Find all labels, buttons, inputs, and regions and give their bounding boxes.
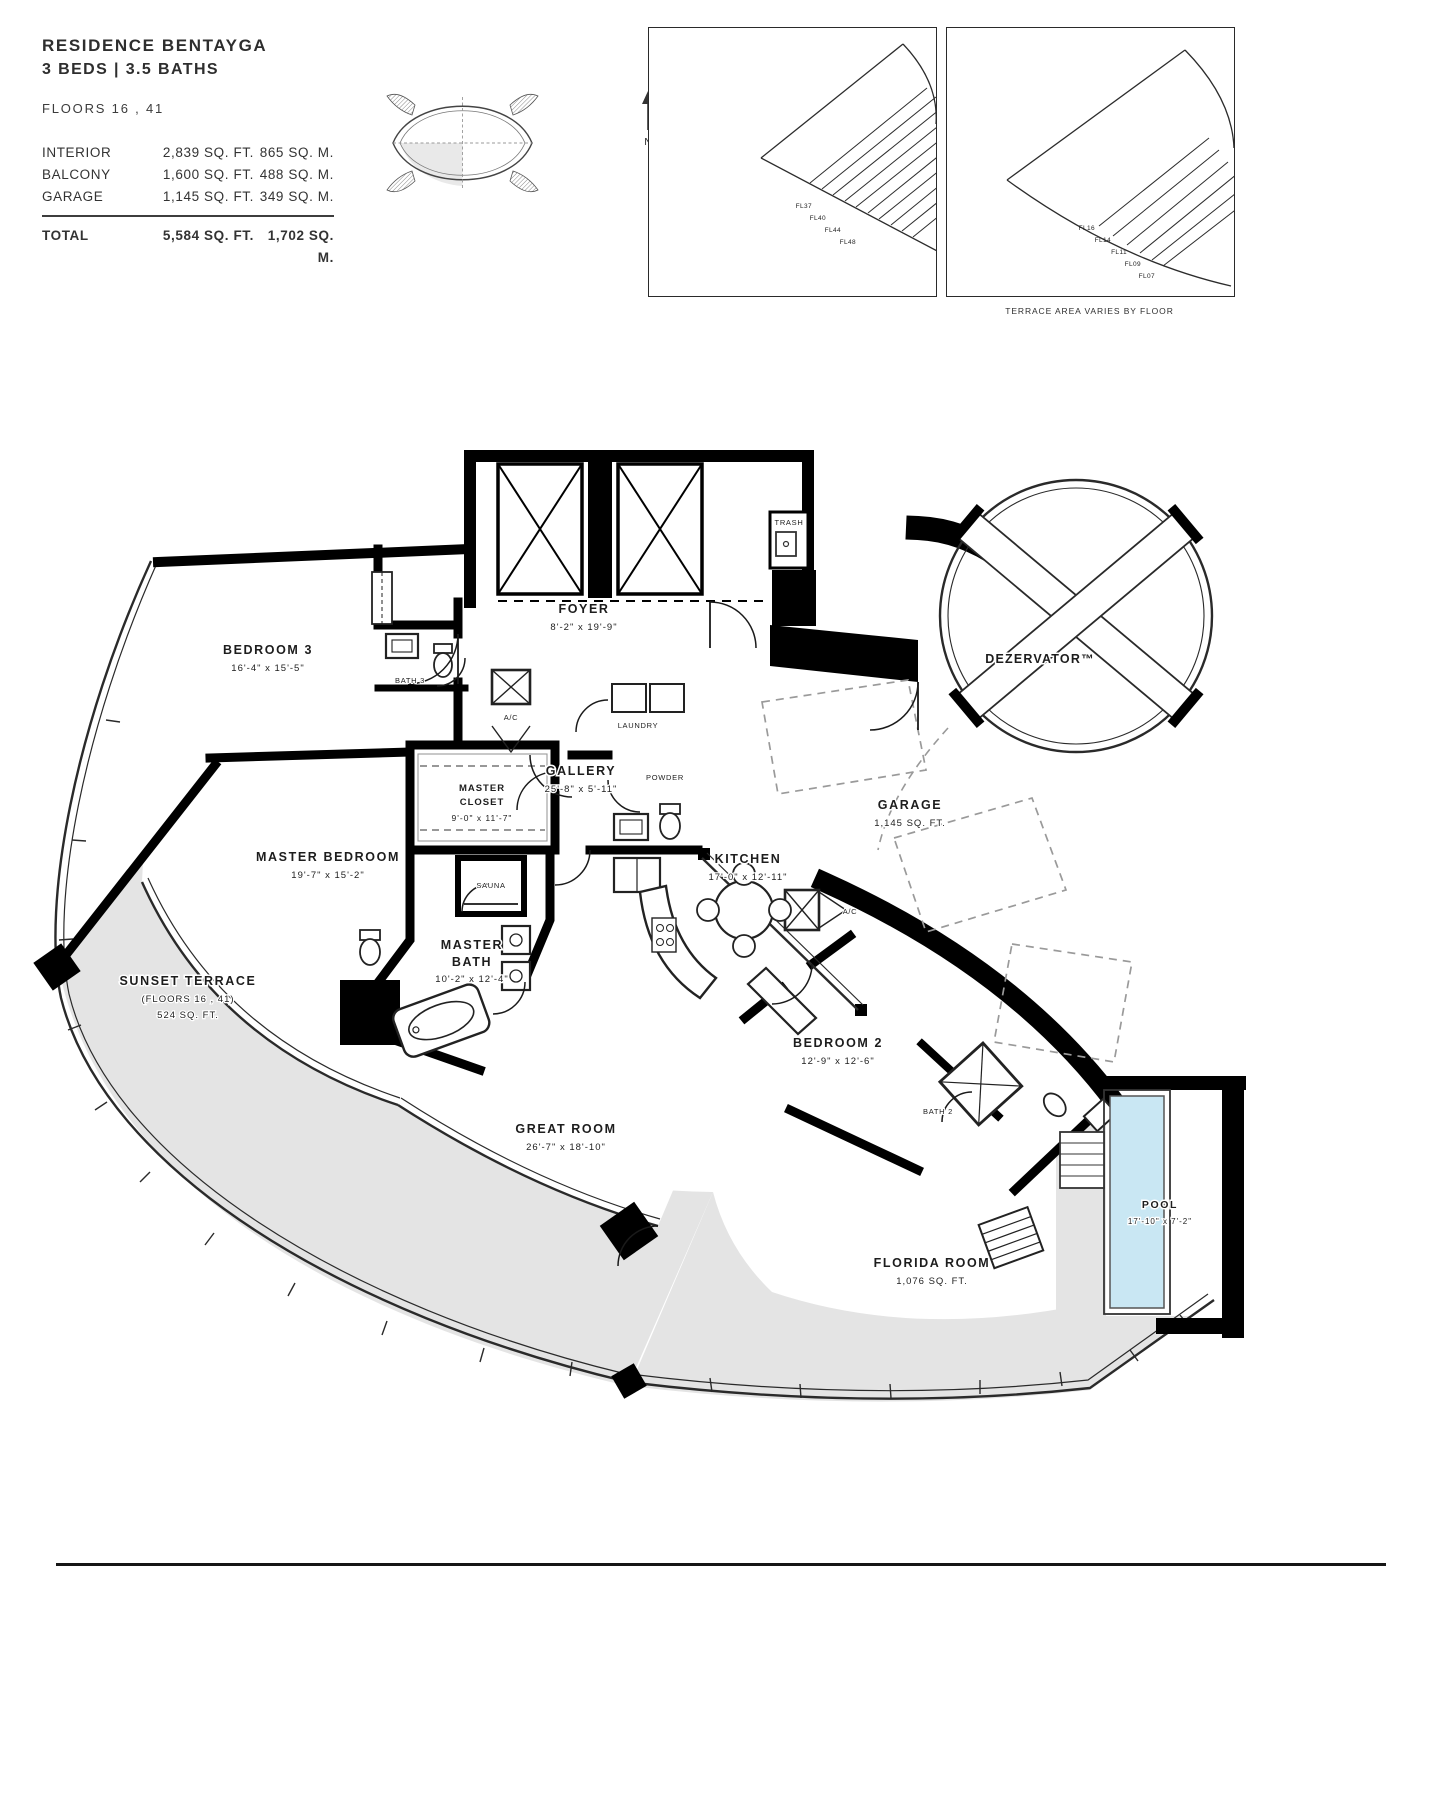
table-row: GARAGE 1,145 SQ. FT. 349 SQ. M.: [42, 186, 334, 208]
row-sqft: 2,839 SQ. FT.: [138, 142, 254, 164]
cooktop: [652, 918, 676, 952]
room-label-powder: POWDER: [646, 773, 684, 782]
pool-steps: [1060, 1132, 1104, 1188]
floor-tag: FL09: [1125, 261, 1141, 268]
room-label-kitchen: KITCHEN: [715, 852, 782, 866]
room-dims-bedroom3: 16'-4" x 15'-5": [231, 663, 304, 674]
room-area-sunset-terrace: 524 SQ. FT.: [157, 1010, 219, 1021]
row-sqm: 865 SQ. M.: [254, 142, 334, 164]
room-label-trash: TRASH: [775, 518, 804, 527]
chair: [697, 899, 719, 921]
total-sqm: 1,702 SQ. M.: [254, 225, 334, 269]
room-area-garage: 1,145 SQ. FT.: [874, 818, 946, 829]
room-label-master-bath: MASTER: [441, 938, 503, 952]
floorplan-page: { "header": { "title": "RESIDENCE BENTAY…: [0, 0, 1440, 1800]
dining-table: [715, 881, 773, 939]
room-label-sauna: SAUNA: [476, 881, 505, 890]
floor-tag: FL37: [796, 203, 812, 210]
beds-baths: 3 BEDS | 3.5 BATHS: [42, 61, 372, 79]
keyplan-upper-floors: FL37 FL40 FL44 FL48: [648, 27, 937, 297]
room-label-bedroom3: BEDROOM 3: [223, 643, 313, 657]
toilet-tank: [434, 644, 452, 653]
table-row: INTERIOR 2,839 SQ. FT. 865 SQ. M.: [42, 142, 334, 164]
table-total-row: TOTAL 5,584 SQ. FT. 1,702 SQ. M.: [42, 215, 334, 269]
row-sqft: 1,600 SQ. FT.: [138, 164, 254, 186]
room-label-master-bath2: BATH: [452, 955, 492, 969]
row-label: GARAGE: [42, 186, 138, 208]
room-label-ac1: A/C: [504, 713, 519, 722]
floor-tag: FL40: [810, 215, 826, 222]
floor-plan: TRASH FOYER 8'-2" x 19'-9" BEDROOM 3 16'…: [10, 420, 1290, 1500]
row-sqm: 349 SQ. M.: [254, 186, 334, 208]
room-label-master-closet2: CLOSET: [460, 797, 505, 808]
room-dims-master-bedroom: 19'-7" x 15'-2": [291, 870, 364, 881]
row-sqft: 1,145 SQ. FT.: [138, 186, 254, 208]
room-label-pool: POOL: [1142, 1199, 1178, 1211]
dryer: [650, 684, 684, 712]
washer: [612, 684, 646, 712]
room-label-ac2: A/C: [843, 907, 858, 916]
room-dims-foyer: 8'-2" x 19'-9": [550, 622, 617, 633]
row-label: INTERIOR: [42, 142, 138, 164]
total-label: TOTAL: [42, 225, 138, 269]
room-label-great-room: GREAT ROOM: [515, 1122, 616, 1136]
total-sqft: 5,584 SQ. FT.: [138, 225, 254, 269]
room-dims-bedroom2: 12'-9" x 12'-6": [801, 1056, 874, 1067]
room-label-master-closet: MASTER: [459, 783, 505, 794]
footer-divider: [56, 1563, 1386, 1566]
toilet: [434, 653, 452, 677]
room-dims-pool: 17'-10" x 7'-2": [1128, 1217, 1192, 1226]
room-label-master-bedroom: MASTER BEDROOM: [256, 850, 400, 864]
toilet: [360, 939, 380, 965]
row-label: BALCONY: [42, 164, 138, 186]
room-area-florida-room: 1,076 SQ. FT.: [896, 1276, 968, 1287]
room-floors-sunset-terrace: (FLOORS 16 , 41): [141, 994, 234, 1005]
table-row: BALCONY 1,600 SQ. FT. 488 SQ. M.: [42, 164, 334, 186]
floor-band-hatch: [810, 88, 937, 237]
floor-tag: FL11: [1111, 249, 1127, 256]
floors-line: FLOORS 16 , 41: [42, 101, 372, 116]
room-label-laundry: LAUNDRY: [618, 721, 659, 730]
page-title: RESIDENCE BENTAYGA: [42, 36, 372, 56]
room-dims-gallery: 25'-8" x 5'-11": [545, 784, 618, 795]
room-label-bath3: BATH 3: [395, 676, 425, 685]
room-label-gallery: GALLERY: [546, 764, 616, 778]
floor-tag: FL48: [840, 239, 856, 246]
keyplan-lower-floors: FL16 FL14 FL11 FL09 FL07: [946, 27, 1235, 297]
floor-tag: FL44: [825, 227, 841, 234]
room-dims-master-bath: 10'-2" x 12'-4": [435, 974, 508, 985]
room-label-dezervator: DEZERVATOR™: [985, 652, 1095, 666]
building-footprint-icon: [385, 84, 540, 202]
room-dims-kitchen: 17'-0" x 12'-11": [708, 872, 787, 883]
room-label-bath2: BATH 2: [923, 1107, 953, 1116]
room-dims-master-closet: 9'-0" x 11'-7": [452, 813, 513, 823]
title-block: RESIDENCE BENTAYGA 3 BEDS | 3.5 BATHS FL…: [42, 36, 372, 269]
row-sqm: 488 SQ. M.: [254, 164, 334, 186]
keyplan-caption: TERRACE AREA VARIES BY FLOOR: [946, 306, 1233, 316]
toil: [660, 813, 680, 839]
floor-tag: FL14: [1095, 237, 1111, 244]
floor-tag: FL07: [1139, 273, 1155, 280]
room-dims-great-room: 26'-7" x 18'-10": [526, 1142, 606, 1153]
room-label-florida-room: FLORIDA ROOM: [874, 1256, 991, 1270]
room-label-bedroom2: BEDROOM 2: [793, 1036, 883, 1050]
room-label-foyer: FOYER: [558, 602, 609, 616]
chair: [733, 935, 755, 957]
area-table: INTERIOR 2,839 SQ. FT. 865 SQ. M. BALCON…: [42, 142, 334, 269]
room-label-sunset-terrace: SUNSET TERRACE: [120, 974, 257, 988]
floor-tag: FL16: [1079, 225, 1095, 232]
room-label-garage: GARAGE: [878, 798, 942, 812]
chair: [769, 899, 791, 921]
